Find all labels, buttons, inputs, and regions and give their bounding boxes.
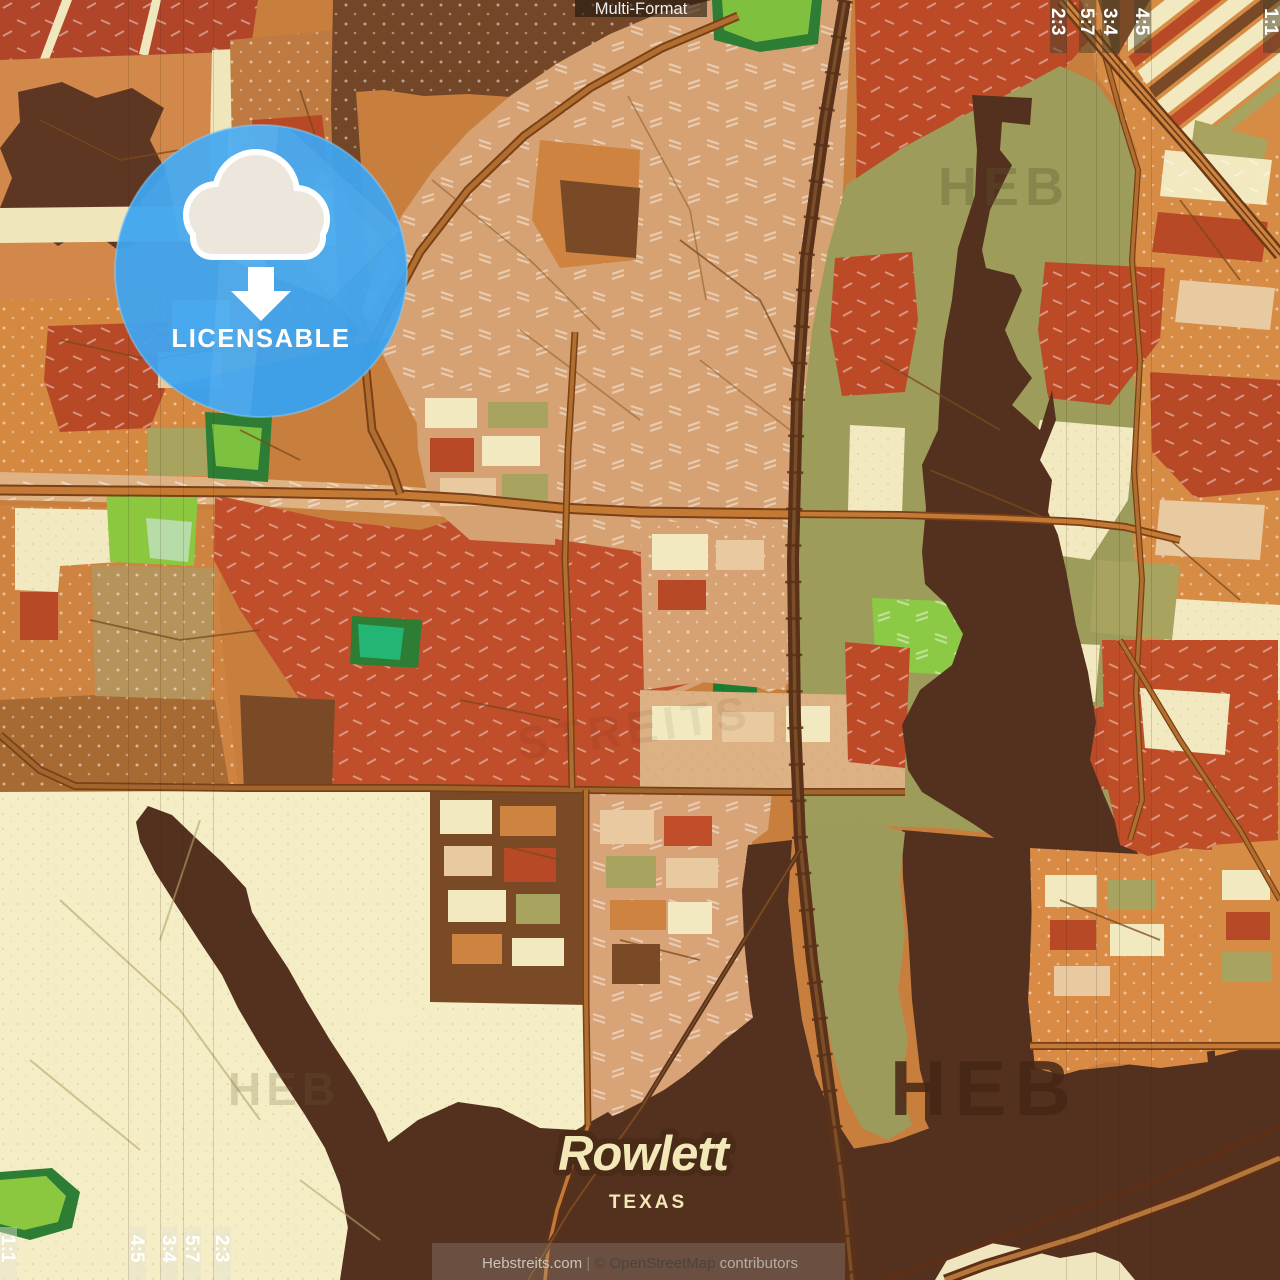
svg-text:HEB: HEB — [228, 1063, 340, 1115]
svg-text:1:1: 1:1 — [1260, 8, 1280, 36]
svg-text:Multi-Format: Multi-Format — [595, 0, 688, 18]
svg-text:5:7: 5:7 — [1076, 8, 1097, 35]
svg-text:4:5: 4:5 — [1131, 8, 1152, 36]
svg-text:Rowlett: Rowlett — [558, 1127, 731, 1181]
svg-text:HEB: HEB — [890, 1044, 1079, 1132]
svg-text:3:4: 3:4 — [158, 1235, 179, 1263]
svg-text:LICENSABLE: LICENSABLE — [172, 325, 351, 353]
svg-text:TEXAS: TEXAS — [609, 1192, 687, 1213]
svg-text:HEB: HEB — [938, 157, 1070, 217]
svg-text:2:3: 2:3 — [211, 1235, 232, 1262]
svg-text:5:7: 5:7 — [181, 1235, 202, 1262]
svg-text:2:3: 2:3 — [1047, 8, 1068, 35]
svg-text:3:4: 3:4 — [1099, 8, 1120, 36]
svg-text:1:1: 1:1 — [0, 1235, 18, 1263]
svg-text:4:5: 4:5 — [126, 1235, 147, 1263]
svg-text:Hebstreits.com | © OpenStreetM: Hebstreits.com | © OpenStreetMap contrib… — [482, 1255, 798, 1272]
